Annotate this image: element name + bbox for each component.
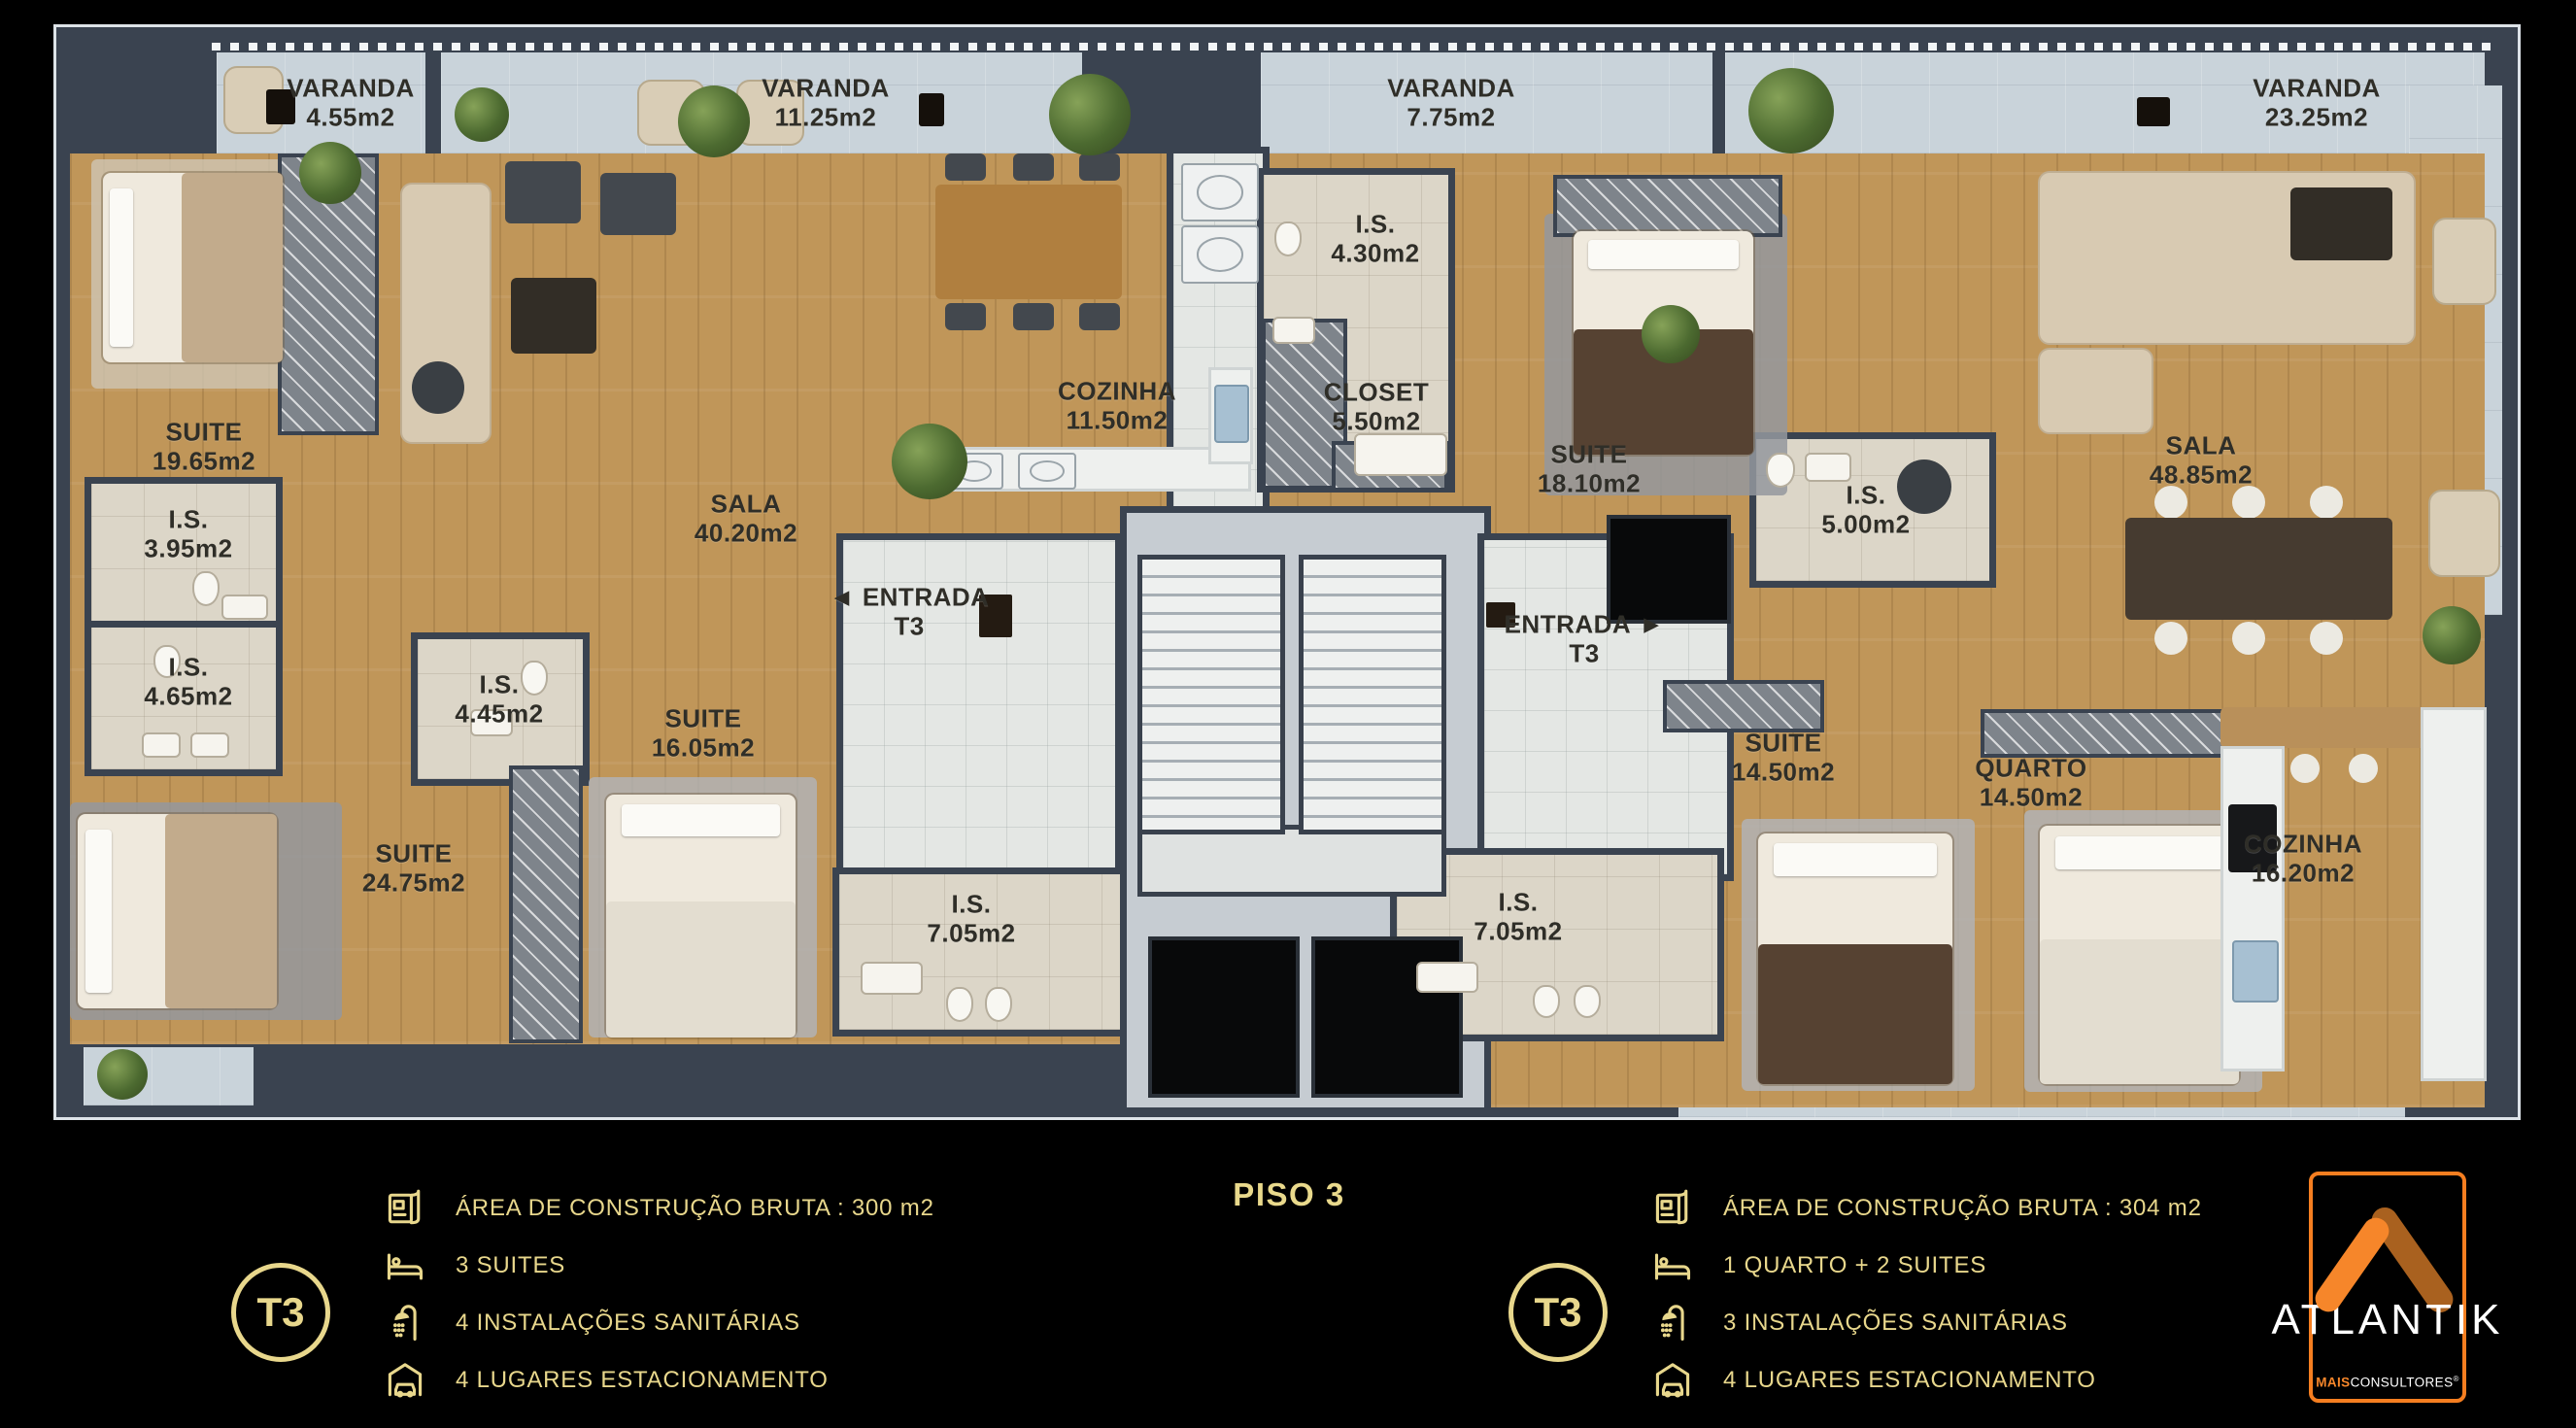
room-name: SUITE <box>1745 729 1821 758</box>
room-label-varanda-1: VARANDA 4.55m2 <box>287 74 415 131</box>
room-label-varanda-2: VARANDA 11.25m2 <box>762 74 890 131</box>
room-label-sala-40-20: SALA 40.20m2 <box>695 490 797 547</box>
room-name: VARANDA <box>1387 74 1515 103</box>
logo-wordmark: ATLANTIK <box>2271 1296 2503 1344</box>
blueprint-icon <box>384 1187 426 1230</box>
legend-item: 4 LUGARES ESTACIONAMENTO <box>1651 1359 2202 1401</box>
dining-chair-graphic <box>1079 153 1120 181</box>
bar-stool-graphic <box>2349 754 2378 783</box>
room-label-closet-5-50: CLOSET 5.50m2 <box>1324 378 1429 435</box>
coffee-table-graphic <box>2290 187 2392 260</box>
bathroom-fixture-graphic <box>1533 985 1560 1018</box>
room-name: SALA <box>2166 431 2237 460</box>
t3-badge-label: T3 <box>1534 1289 1581 1336</box>
dining-chair-graphic <box>1079 303 1120 330</box>
room-label-quarto-14-50: QUARTO 14.50m2 <box>1975 754 2086 811</box>
legend-item: 4 INSTALAÇÕES SANITÁRIAS <box>384 1302 934 1343</box>
room-area: 7.05m2 <box>1474 917 1562 946</box>
bathroom-fixture-graphic <box>1766 453 1795 488</box>
room-label-varanda-3: VARANDA 7.75m2 <box>1387 74 1515 131</box>
plant-graphic <box>299 142 361 204</box>
bar-stool-graphic <box>2290 754 2320 783</box>
dining-chair-graphic <box>2154 486 2187 519</box>
room-name: I.S. <box>1498 888 1538 917</box>
armchair-graphic <box>600 173 676 235</box>
dining-chair-graphic <box>1013 303 1054 330</box>
appliance-graphic <box>1181 163 1259 221</box>
legend-item: 4 LUGARES ESTACIONAMENTO <box>384 1359 934 1401</box>
room-area: 24.75m2 <box>362 868 465 898</box>
room-name: SUITE <box>375 839 452 868</box>
room-area: 19.65m2 <box>153 447 255 476</box>
bathroom-fixture-graphic <box>1574 985 1601 1018</box>
plant-graphic <box>892 424 967 499</box>
room-area: 23.25m2 <box>2265 103 2368 132</box>
room-area: 40.20m2 <box>695 519 797 548</box>
room-label-suite-16-05: SUITE 16.05m2 <box>652 704 755 762</box>
room-name: SUITE <box>1550 440 1627 469</box>
dining-chair-graphic <box>2232 486 2265 519</box>
bed-icon <box>1651 1244 1694 1287</box>
floor-title: PISO 3 <box>1233 1176 1344 1213</box>
room-area: 48.85m2 <box>2150 460 2253 490</box>
room-area: 16.05m2 <box>652 733 755 763</box>
room-area: 3.95m2 <box>144 534 232 563</box>
room-label-varanda-4: VARANDA 23.25m2 <box>2253 74 2381 131</box>
lounge-chair-graphic <box>2428 490 2500 577</box>
room-name: SALA <box>711 490 782 519</box>
room-area: 5.00m2 <box>1821 510 1910 539</box>
bed-graphic <box>1758 833 1952 1084</box>
plant-graphic <box>455 87 509 142</box>
plant-graphic <box>1049 74 1131 155</box>
room-label-entrada-left: ◄ ENTRADA T3 <box>830 583 990 640</box>
room-area: T3 <box>894 612 924 641</box>
registered-mark: ® <box>2453 1375 2458 1383</box>
room-area: 7.75m2 <box>1407 103 1495 132</box>
bed-icon <box>384 1244 426 1287</box>
dining-chair-graphic <box>2310 486 2343 519</box>
legend-item-label: 4 LUGARES ESTACIONAMENTO <box>456 1367 829 1394</box>
room-name: VARANDA <box>287 74 415 103</box>
plant-graphic <box>1748 68 1834 153</box>
wardrobe-graphic <box>1557 179 1779 233</box>
room-label-cozinha-11-50: COZINHA 11.50m2 <box>1058 377 1176 434</box>
bathroom-fixture-graphic <box>142 732 181 758</box>
bed-graphic <box>78 814 277 1008</box>
room-area: T3 <box>1569 639 1599 668</box>
bed-graphic <box>606 795 796 1037</box>
room-name: CLOSET <box>1324 378 1429 407</box>
room-area: 4.55m2 <box>306 103 394 132</box>
balcony-table-graphic <box>2137 97 2170 126</box>
balcony-railing <box>212 43 2491 51</box>
room-name: SUITE <box>664 704 741 733</box>
sink-graphic <box>2232 940 2279 1003</box>
dining-table-graphic <box>2125 518 2392 620</box>
legend-left: ÁREA DE CONSTRUÇÃO BRUTA : 300 m2 3 SUIT… <box>384 1187 934 1401</box>
kitchen-counter-graphic <box>2421 707 2487 1081</box>
bathroom-fixture-graphic <box>985 987 1012 1022</box>
wardrobe-graphic <box>513 769 579 1039</box>
legend-item-label: 4 INSTALAÇÕES SANITÁRIAS <box>456 1309 800 1337</box>
bed-graphic <box>2040 826 2239 1084</box>
legend-item: ÁREA DE CONSTRUÇÃO BRUTA : 304 m2 <box>1651 1187 2202 1229</box>
dining-chair-graphic <box>2232 622 2265 655</box>
room-name: I.S. <box>1846 481 1885 510</box>
legend-item-label: 4 LUGARES ESTACIONAMENTO <box>1723 1367 2096 1394</box>
logo-subtitle-rest: CONSULTORES <box>2351 1375 2454 1389</box>
sink-graphic <box>1214 385 1249 443</box>
room-label-entrada-right: ENTRADA ► T3 <box>1505 610 1665 667</box>
legend-item: 3 INSTALAÇÕES SANITÁRIAS <box>1651 1302 2202 1343</box>
legend-item-label: 3 INSTALAÇÕES SANITÁRIAS <box>1723 1309 2068 1337</box>
room-area: 4.30m2 <box>1331 239 1419 268</box>
car-garage-icon <box>1651 1359 1694 1402</box>
room-area: 16.20m2 <box>2252 859 2355 888</box>
legend-right: ÁREA DE CONSTRUÇÃO BRUTA : 304 m2 1 QUAR… <box>1651 1187 2202 1401</box>
room-area: 18.10m2 <box>1538 469 1641 498</box>
shower-icon <box>1651 1302 1694 1344</box>
room-label-cozinha-16-20: COZINHA 16.20m2 <box>2244 830 2362 887</box>
room-label-suite-18-10: SUITE 18.10m2 <box>1538 440 1641 497</box>
legend-item-label: 3 SUITES <box>456 1252 565 1279</box>
t3-badge-left: T3 <box>231 1263 330 1362</box>
car-garage-icon <box>384 1359 426 1402</box>
t3-badge-right: T3 <box>1508 1263 1608 1362</box>
bathroom-fixture-graphic <box>190 732 229 758</box>
room-name: COZINHA <box>1058 377 1176 406</box>
floor-plan: VARANDA 4.55m2 VARANDA 11.25m2 VARANDA 7… <box>56 27 2518 1117</box>
wardrobe-graphic <box>1667 684 1820 729</box>
room-label-sala-48-85: SALA 48.85m2 <box>2150 431 2253 489</box>
dining-chair-graphic <box>2310 622 2343 655</box>
room-area: 14.50m2 <box>1732 758 1835 787</box>
room-label-suite-14-50: SUITE 14.50m2 <box>1732 729 1835 786</box>
bathroom-fixture-graphic <box>192 571 220 606</box>
room-label-is-3-95: I.S. 3.95m2 <box>144 505 232 562</box>
legend-item: 3 SUITES <box>384 1244 934 1286</box>
bathroom-fixture-graphic <box>946 987 973 1022</box>
stair-landing <box>1142 830 1441 892</box>
shower-icon <box>384 1302 426 1344</box>
entrance-arrow-icon: ► <box>1639 610 1664 639</box>
dining-chair-graphic <box>2154 622 2187 655</box>
room-name: ENTRADA <box>1505 610 1632 639</box>
kitchen-island-graphic <box>2220 746 2285 1071</box>
blueprint-icon <box>1651 1187 1694 1230</box>
room-label-is-7-05-right: I.S. 7.05m2 <box>1474 888 1562 945</box>
room-name: I.S. <box>1355 210 1395 239</box>
room-label-is-4-45: I.S. 4.45m2 <box>455 670 543 728</box>
plant-graphic <box>97 1049 148 1100</box>
floor-plan-page: { "piso_label": "PISO 3", "plan": { "var… <box>0 0 2576 1428</box>
legend-item-label: ÁREA DE CONSTRUÇÃO BRUTA : 304 m2 <box>1723 1195 2202 1222</box>
room-name: VARANDA <box>2253 74 2381 103</box>
room-name: VARANDA <box>762 74 890 103</box>
dining-chair-graphic <box>1013 153 1054 181</box>
room-area: 4.45m2 <box>455 699 543 729</box>
balcony-table-graphic <box>919 93 944 126</box>
bathroom-fixture-graphic <box>1805 453 1851 482</box>
stairs-graphic <box>1304 560 1441 830</box>
logo-subtitle-bold: MAIS <box>2316 1375 2350 1389</box>
appliance-graphic <box>1181 225 1259 284</box>
bathroom-fixture-graphic <box>861 962 923 995</box>
stairs-graphic <box>1142 560 1280 830</box>
logo-subtitle: MAISCONSULTORES® <box>2313 1375 2462 1390</box>
room-name: I.S. <box>168 653 208 682</box>
bed-graphic <box>103 173 283 362</box>
dining-chair-graphic <box>945 303 986 330</box>
legend-item-label: ÁREA DE CONSTRUÇÃO BRUTA : 300 m2 <box>456 1195 934 1222</box>
room-name: SUITE <box>165 418 242 447</box>
coffee-table-graphic <box>511 278 596 354</box>
plant-graphic <box>1642 305 1700 363</box>
room-area: 11.25m2 <box>775 103 877 132</box>
lounge-chair-graphic <box>2432 218 2496 305</box>
sofa-graphic <box>2038 348 2153 434</box>
room-name: QUARTO <box>1975 754 2086 783</box>
room-name: ENTRADA <box>863 583 990 612</box>
dining-table-graphic <box>935 185 1122 299</box>
bathroom-fixture-graphic <box>1416 962 1478 993</box>
bathroom-fixture-graphic <box>1272 317 1315 344</box>
bathroom-fixture-graphic <box>221 595 268 620</box>
room-label-is-5-00: I.S. 5.00m2 <box>1821 481 1910 538</box>
room-area: 7.05m2 <box>927 919 1015 948</box>
room-label-is-4-30: I.S. 4.30m2 <box>1331 210 1419 267</box>
entrance-arrow-icon: ◄ <box>830 583 855 612</box>
atlantik-logo: ATLANTIK MAISCONSULTORES® <box>2309 1172 2466 1403</box>
armchair-graphic <box>505 161 581 223</box>
room-name: I.S. <box>479 670 519 699</box>
t3-badge-label: T3 <box>256 1289 304 1336</box>
elevator-shaft-graphic <box>1152 940 1296 1094</box>
elevator-shaft-graphic <box>1610 519 1727 620</box>
room-area: 14.50m2 <box>1980 783 2083 812</box>
bathroom-fixture-graphic <box>1274 221 1302 256</box>
pouf-graphic <box>412 361 464 414</box>
dining-chair-graphic <box>945 153 986 181</box>
room-area: 11.50m2 <box>1067 406 1169 435</box>
room-name: I.S. <box>951 890 991 919</box>
plant-graphic <box>678 85 750 157</box>
legend-item: 1 QUARTO + 2 SUITES <box>1651 1244 2202 1286</box>
room-label-is-7-05-left: I.S. 7.05m2 <box>927 890 1015 947</box>
room-name: COZINHA <box>2244 830 2362 859</box>
legend-item-label: 1 QUARTO + 2 SUITES <box>1723 1252 1986 1279</box>
legend-item: ÁREA DE CONSTRUÇÃO BRUTA : 300 m2 <box>384 1187 934 1229</box>
room-label-suite-19-65: SUITE 19.65m2 <box>153 418 255 475</box>
room-name: I.S. <box>168 505 208 534</box>
appliance-graphic <box>1018 453 1076 490</box>
room-area: 4.65m2 <box>144 682 232 711</box>
room-label-is-4-65: I.S. 4.65m2 <box>144 653 232 710</box>
bathtub-graphic <box>1354 433 1447 476</box>
room-area: 5.50m2 <box>1332 407 1420 436</box>
room-label-suite-24-75: SUITE 24.75m2 <box>362 839 465 897</box>
plant-graphic <box>2423 606 2481 664</box>
